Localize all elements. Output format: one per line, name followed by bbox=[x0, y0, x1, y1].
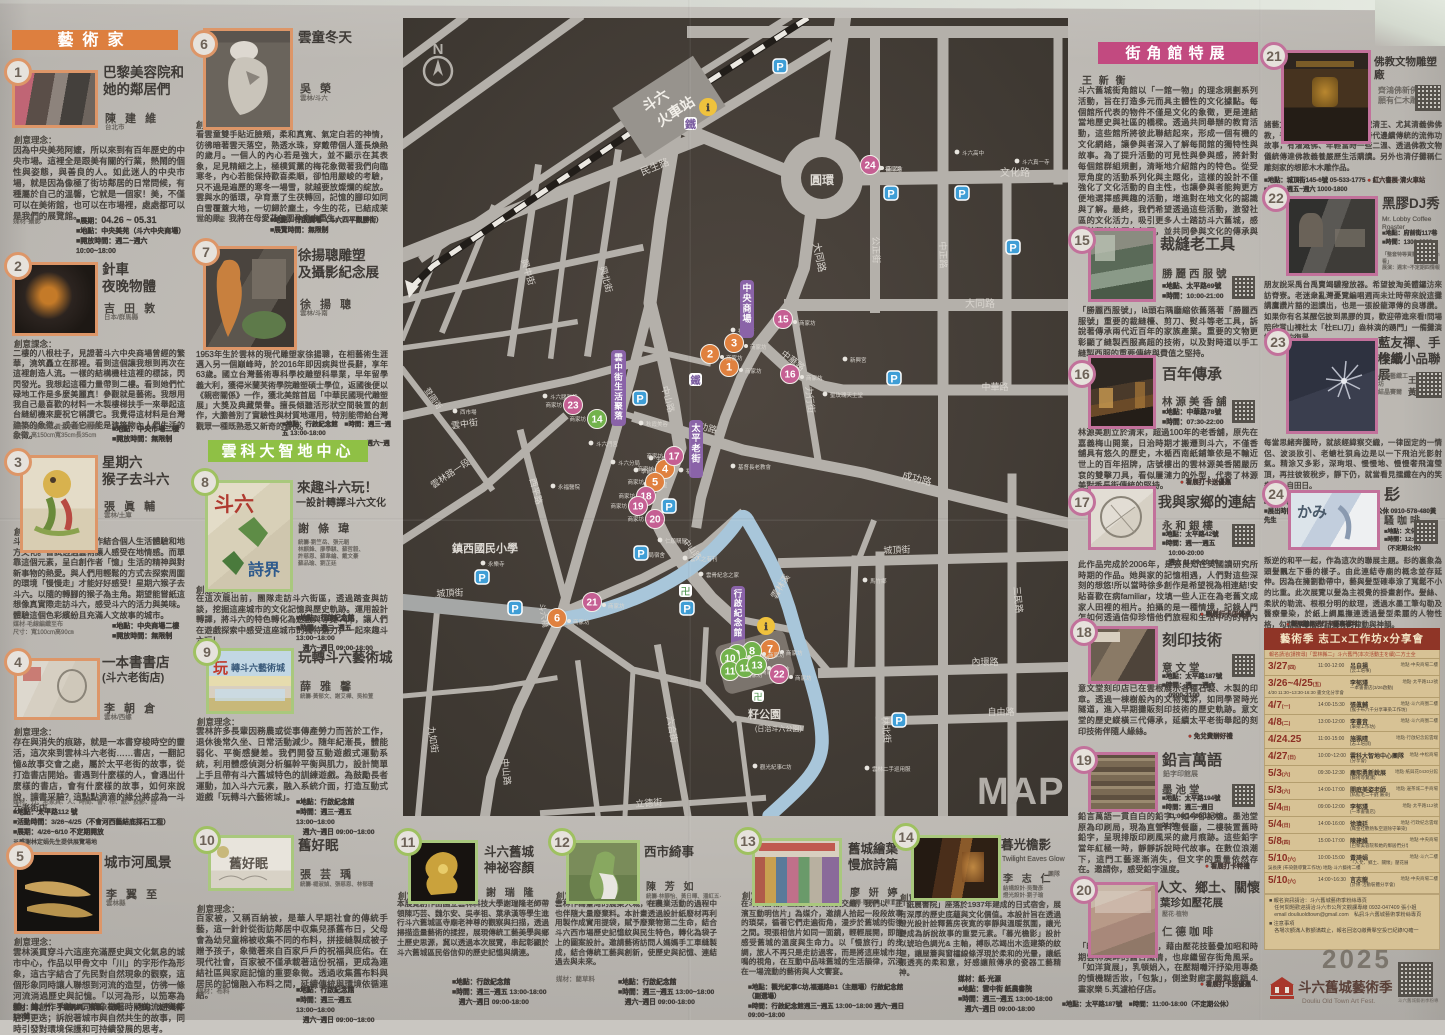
svg-text:商家坊: 商家坊 bbox=[768, 651, 785, 659]
svg-text:雲林二手巡用服: 雲林二手巡用服 bbox=[872, 765, 911, 773]
svg-text:P: P bbox=[958, 189, 965, 201]
svg-text:自由路: 自由路 bbox=[987, 706, 1014, 717]
svg-text:商家坊: 商家坊 bbox=[569, 415, 586, 423]
svg-text:商家坊: 商家坊 bbox=[806, 374, 823, 382]
svg-text:卍: 卍 bbox=[753, 692, 762, 702]
svg-text:公正街: 公正街 bbox=[871, 236, 883, 263]
svg-text:11: 11 bbox=[725, 667, 736, 678]
svg-text:立德街: 立德街 bbox=[635, 796, 663, 809]
svg-text:P: P bbox=[1009, 243, 1016, 255]
svg-text:P: P bbox=[776, 62, 783, 74]
svg-text:場: 場 bbox=[742, 313, 751, 324]
svg-text:啟: 啟 bbox=[734, 598, 743, 608]
svg-text:聚: 聚 bbox=[613, 401, 623, 411]
svg-text:籽公園: 籽公園 bbox=[748, 707, 781, 721]
svg-text:聖玫瑰天主堂: 聖玫瑰天主堂 bbox=[830, 391, 864, 399]
svg-text:2: 2 bbox=[707, 349, 713, 361]
svg-text:16: 16 bbox=[784, 370, 796, 381]
svg-text:街: 街 bbox=[690, 453, 700, 464]
svg-text:中正路: 中正路 bbox=[938, 241, 950, 268]
svg-text:轉斗六藝術城: 轉斗六藝術城 bbox=[231, 662, 285, 673]
svg-text:斗六高中: 斗六高中 bbox=[962, 149, 984, 157]
svg-text:斗六真一寺: 斗六真一寺 bbox=[1022, 158, 1050, 166]
svg-text:念: 念 bbox=[733, 618, 743, 628]
svg-text:4: 4 bbox=[662, 464, 669, 476]
svg-text:(日治斗六公園): (日治斗六公園) bbox=[755, 724, 802, 733]
svg-text:商家坊: 商家坊 bbox=[646, 452, 663, 460]
svg-text:商家坊: 商家坊 bbox=[886, 165, 903, 173]
svg-text:鐵: 鐵 bbox=[691, 374, 701, 387]
svg-text:西市場: 西市場 bbox=[460, 408, 477, 416]
svg-text:1: 1 bbox=[726, 362, 732, 374]
svg-text:商家坊: 商家坊 bbox=[786, 649, 803, 657]
svg-text:かみ: かみ bbox=[1297, 504, 1327, 521]
svg-text:大同路: 大同路 bbox=[965, 297, 995, 310]
svg-text:P: P bbox=[890, 374, 897, 386]
svg-text:5: 5 bbox=[652, 477, 658, 489]
svg-text:21: 21 bbox=[586, 598, 598, 609]
svg-text:活: 活 bbox=[614, 391, 623, 401]
svg-text:3: 3 bbox=[731, 338, 737, 350]
svg-text:永福醫院: 永福醫院 bbox=[558, 483, 581, 491]
svg-text:仁願購屋: 仁願購屋 bbox=[665, 537, 688, 545]
svg-text:P: P bbox=[895, 716, 902, 728]
svg-text:內環路: 內環路 bbox=[971, 656, 998, 667]
svg-text:雲: 雲 bbox=[614, 353, 623, 363]
svg-text:19: 19 bbox=[632, 502, 644, 513]
svg-text:22: 22 bbox=[773, 670, 785, 681]
svg-text:6: 6 bbox=[554, 613, 560, 625]
svg-text:平: 平 bbox=[691, 433, 700, 443]
svg-text:商家坊: 商家坊 bbox=[799, 319, 816, 327]
svg-text:館: 館 bbox=[733, 627, 743, 637]
svg-text:斗六門宮: 斗六門宮 bbox=[596, 440, 619, 448]
svg-text:永樂寺: 永樂寺 bbox=[488, 560, 505, 568]
svg-text:城頂街: 城頂街 bbox=[883, 544, 910, 556]
svg-text:秋霞美容: 秋霞美容 bbox=[646, 420, 669, 428]
svg-text:商家坊: 商家坊 bbox=[610, 502, 627, 510]
svg-text:馬竹鄉: 馬竹鄉 bbox=[870, 577, 887, 585]
svg-text:商家坊: 商家坊 bbox=[726, 354, 743, 362]
svg-text:雲骨紀念之家: 雲骨紀念之家 bbox=[706, 571, 740, 579]
svg-text:中華路: 中華路 bbox=[981, 381, 1008, 392]
svg-text:P: P bbox=[665, 502, 672, 514]
svg-text:詩界: 詩界 bbox=[248, 560, 280, 579]
svg-text:城頂街: 城頂街 bbox=[436, 587, 463, 599]
svg-text:P: P bbox=[637, 549, 644, 561]
svg-text:新興宮: 新興宮 bbox=[850, 356, 867, 364]
svg-text:14: 14 bbox=[591, 415, 603, 426]
svg-text:中: 中 bbox=[614, 362, 623, 372]
svg-text:ℹ: ℹ bbox=[764, 622, 768, 633]
svg-text:ℹ: ℹ bbox=[706, 103, 710, 114]
svg-text:行: 行 bbox=[733, 589, 743, 599]
svg-text:鎮西國民小學: 鎮西國民小學 bbox=[452, 541, 518, 555]
svg-text:P: P bbox=[887, 189, 894, 201]
svg-text:13: 13 bbox=[751, 661, 763, 672]
svg-text:斗六: 斗六 bbox=[214, 493, 254, 516]
svg-text:商家坊: 商家坊 bbox=[745, 367, 762, 375]
svg-text:P: P bbox=[478, 573, 485, 585]
svg-text:太: 太 bbox=[690, 422, 701, 433]
svg-text:商: 商 bbox=[742, 302, 751, 313]
svg-text:斗六分局: 斗六分局 bbox=[618, 459, 640, 467]
svg-text:P: P bbox=[511, 604, 518, 616]
svg-text:中: 中 bbox=[742, 282, 751, 293]
svg-text:15: 15 bbox=[777, 315, 789, 326]
svg-text:MAP: MAP bbox=[977, 771, 1064, 813]
svg-text:圓環: 圓環 bbox=[810, 172, 835, 187]
svg-text:P: P bbox=[636, 394, 643, 406]
svg-text:24: 24 bbox=[864, 161, 876, 172]
svg-text:23: 23 bbox=[567, 401, 579, 412]
svg-text:商家坊: 商家坊 bbox=[573, 618, 590, 626]
svg-text:舊好眠: 舊好眠 bbox=[229, 856, 268, 871]
svg-text:商家坊: 商家坊 bbox=[750, 343, 767, 351]
svg-text:落: 落 bbox=[614, 411, 623, 421]
svg-text:觀光紀事C坊: 觀光紀事C坊 bbox=[760, 763, 792, 771]
svg-text:17: 17 bbox=[668, 452, 680, 463]
svg-text:商家坊: 商家坊 bbox=[627, 478, 644, 486]
svg-text:央: 央 bbox=[742, 292, 752, 303]
svg-text:紀: 紀 bbox=[734, 608, 743, 618]
svg-text:商家坊: 商家坊 bbox=[795, 674, 812, 682]
svg-text:商家坊: 商家坊 bbox=[637, 465, 654, 473]
svg-text:基督長老教會: 基督長老教會 bbox=[738, 463, 772, 471]
svg-text:商家坊: 商家坊 bbox=[545, 401, 562, 409]
svg-text:老: 老 bbox=[690, 442, 700, 453]
svg-text:生: 生 bbox=[614, 382, 623, 392]
svg-text:N: N bbox=[433, 41, 444, 58]
svg-text:街: 街 bbox=[613, 372, 623, 382]
svg-text:文化路: 文化路 bbox=[1000, 166, 1030, 179]
svg-text:商家坊: 商家坊 bbox=[608, 602, 625, 610]
svg-text:雲人之有刊: 雲人之有刊 bbox=[690, 555, 718, 563]
